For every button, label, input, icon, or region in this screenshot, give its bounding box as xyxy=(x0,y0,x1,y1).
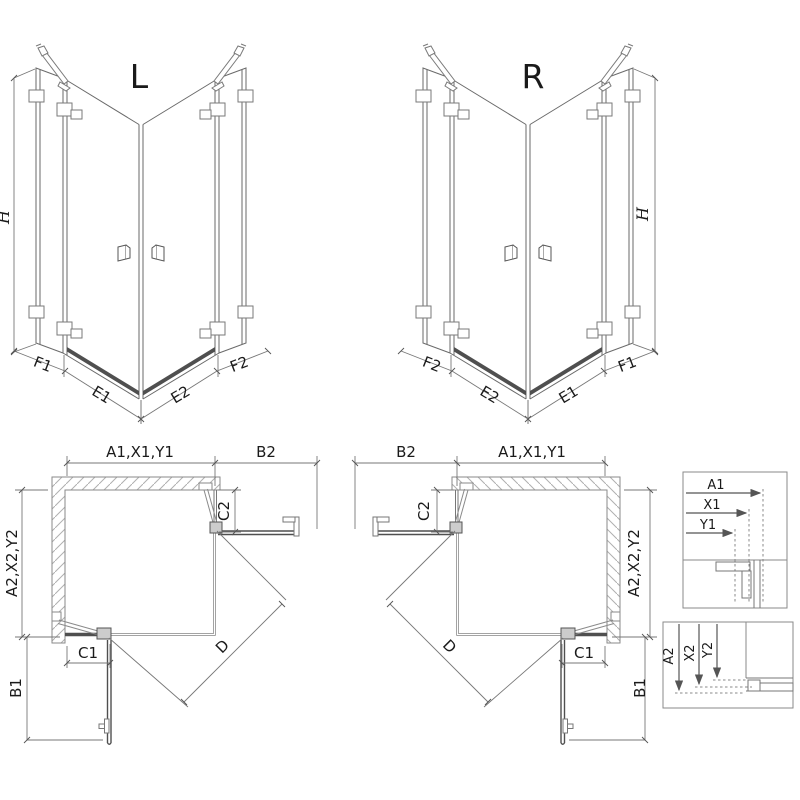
detail-label-a2: A2 xyxy=(662,647,677,664)
detail-box-2-frame xyxy=(663,622,793,708)
plan-left-dim-d: D xyxy=(212,636,233,657)
plan-right-dim-c2: C2 xyxy=(415,501,433,521)
iso-left-height-label: H xyxy=(0,209,13,225)
iso-right-title: R xyxy=(522,57,545,96)
iso-right-dim-f2: F2 xyxy=(420,353,443,376)
plan-left-dim-c2: C2 xyxy=(215,501,233,521)
iso-right-height-label: H xyxy=(633,206,652,222)
iso-view-right: R H F2 E2 E1 F1 xyxy=(398,44,658,424)
iso-left-dim-f1: F1 xyxy=(31,353,54,376)
plan-right-dim-d: D xyxy=(439,636,460,657)
detail-label-y1: Y1 xyxy=(699,518,716,533)
iso-left-dim-e2: E2 xyxy=(168,382,194,407)
detail-box-horizontal-dims: A1 X1 Y1 xyxy=(683,472,787,608)
detail-box-vertical-dims: A2 X2 Y2 xyxy=(662,622,793,708)
detail-label-x1: X1 xyxy=(703,498,720,513)
plan-right-dim-a1x1y1: A1,X1,Y1 xyxy=(498,443,566,461)
plan-view-left: A1,X1,Y1 B2 C2 A2,X2,Y2 C1 B1 D xyxy=(3,443,320,744)
plan-left-dim-b1: B1 xyxy=(7,678,25,698)
iso-right-dim-f1: F1 xyxy=(616,353,639,376)
plan-right-dim-b1: B1 xyxy=(631,678,649,698)
detail-label-a1: A1 xyxy=(707,478,724,493)
plan-left-dim-c1: C1 xyxy=(78,644,98,662)
iso-left-dim-f2: F2 xyxy=(228,353,251,376)
iso-right-dim-e2: E2 xyxy=(477,382,503,407)
iso-left-title: L xyxy=(130,57,149,96)
iso-view-left: L H F1 E1 E2 F2 xyxy=(0,44,271,424)
iso-right-dim-e1: E1 xyxy=(556,382,582,407)
iso-left-dim-e1: E1 xyxy=(89,382,115,407)
plan-right-dim-a2x2y2: A2,X2,Y2 xyxy=(625,529,643,597)
shower-dimension-diagram: L H F1 E1 E2 F2 R H F2 E2 E1 F1 A1,X1,Y1… xyxy=(0,0,800,800)
plan-left-dim-a2x2y2: A2,X2,Y2 xyxy=(3,529,21,597)
plan-left-dim-b2: B2 xyxy=(256,443,276,461)
plan-left-dim-a1x1y1: A1,X1,Y1 xyxy=(106,443,174,461)
plan-right-dim-b2: B2 xyxy=(396,443,416,461)
detail-label-x2: X2 xyxy=(683,644,698,661)
plan-view-right: A1,X1,Y1 B2 C2 A2,X2,Y2 C1 B1 D xyxy=(352,443,657,744)
plan-right-dim-c1: C1 xyxy=(574,644,594,662)
detail-label-y2: Y2 xyxy=(701,642,716,659)
